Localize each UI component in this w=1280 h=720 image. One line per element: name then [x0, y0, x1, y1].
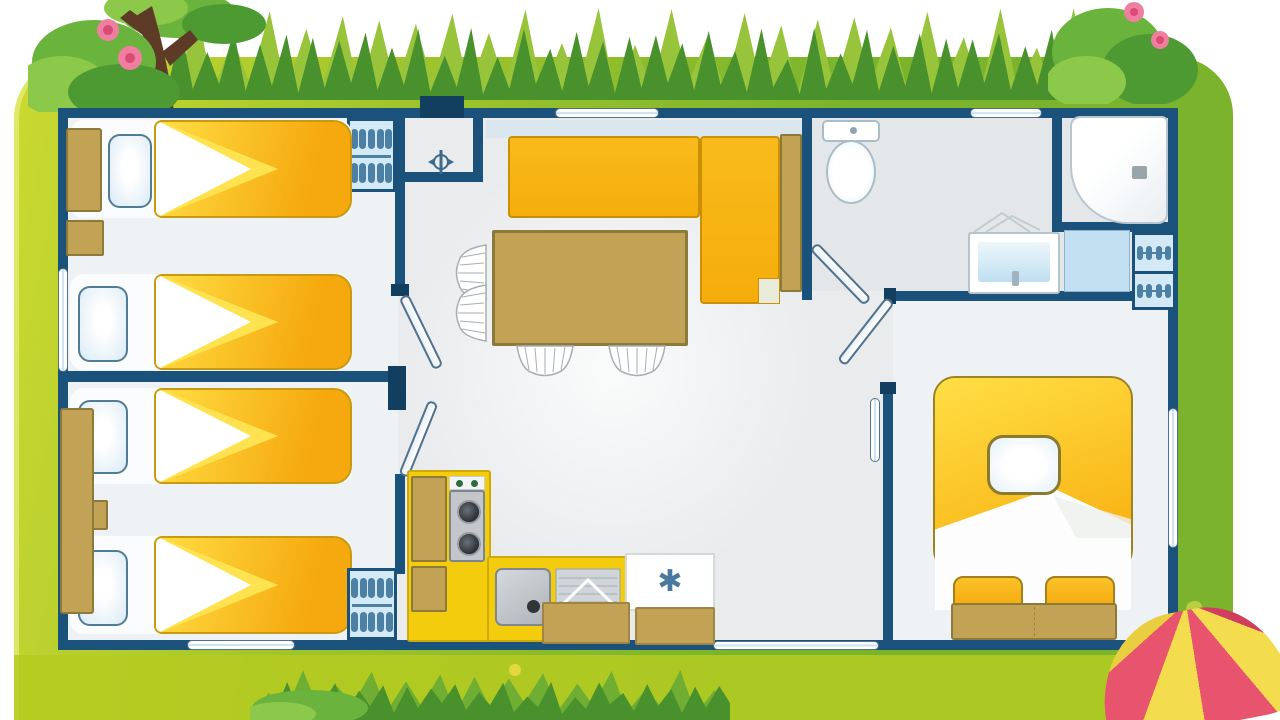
sofa-backrest [780, 134, 802, 292]
sofa-corner [758, 278, 780, 304]
bed-headboard [66, 128, 102, 212]
vanity-counter [1064, 230, 1130, 292]
window-left [58, 268, 68, 372]
window-bath [970, 108, 1042, 118]
wardrobe-bathroom [1132, 232, 1176, 310]
washbasin-faucet [1012, 271, 1019, 286]
flower-center [103, 25, 113, 35]
floorplan-illustration: ✱ [0, 0, 1280, 720]
flower-center [1130, 8, 1138, 16]
dining-table [492, 230, 688, 346]
bed-headboard-tall [60, 408, 94, 614]
stove-burner [457, 500, 481, 524]
window-living [555, 108, 659, 118]
kitchen-cabinet [411, 476, 447, 562]
kitchen-cabinet [411, 566, 447, 612]
tree [28, 0, 300, 112]
bed-blanket [154, 274, 352, 370]
sink-drain [527, 600, 540, 613]
bed-blanket [154, 388, 352, 484]
grass-bottom [250, 662, 730, 720]
flower-center [125, 53, 135, 63]
towels [972, 210, 1044, 234]
bed-decor-cushion [987, 435, 1061, 495]
headboard-seam [1034, 607, 1035, 636]
wall-bedroom3-cap [880, 382, 896, 394]
snowflake-icon: ✱ [627, 555, 713, 609]
bush-right [1048, 0, 1198, 104]
window-bottom-mid [713, 641, 879, 650]
stove-knob [456, 480, 463, 487]
dining-chair [605, 342, 669, 376]
stove-burner [457, 532, 481, 556]
wardrobe-bedroom1 [347, 118, 396, 192]
double-bed-headboard [951, 603, 1117, 640]
freezer: ✱ [625, 553, 715, 611]
toilet-bowl [826, 140, 876, 204]
toilet-button [850, 127, 857, 134]
flower-center [1156, 36, 1164, 44]
headboard-knob [92, 500, 108, 530]
wardrobe-bedroom2 [347, 568, 397, 640]
dining-chair [513, 342, 577, 376]
wall-bedroom2 [395, 474, 405, 574]
nightstand [66, 220, 104, 256]
shower-drain [1132, 166, 1147, 179]
sofa-seat-horizontal [508, 136, 700, 218]
wall-right [1168, 108, 1178, 650]
double-bed [933, 376, 1133, 640]
flower-yellow [509, 664, 521, 676]
compass-west [428, 158, 435, 166]
vestibule-symbol [428, 149, 454, 175]
washbasin [968, 232, 1060, 294]
bed-pillow [78, 286, 128, 362]
wall-bedroom-divider [68, 371, 398, 382]
stove-knob-panel [449, 476, 485, 490]
compass-axis [440, 150, 443, 174]
entry-step [542, 602, 630, 644]
floorplan: ✱ [58, 108, 1178, 650]
bed-pillow [108, 134, 152, 208]
stove-knob [471, 480, 478, 487]
wall-wc [802, 118, 812, 300]
stove [449, 490, 485, 562]
bed-blanket [154, 120, 352, 218]
window-bedroom3 [1168, 408, 1178, 548]
entry-step [635, 607, 715, 645]
wall-bedroom1 [395, 118, 405, 294]
wall-divider-cap [388, 366, 406, 410]
compass-east [447, 158, 454, 166]
toilet-tank [822, 120, 880, 142]
wall-shower-v [1052, 118, 1062, 230]
window-hall-side [870, 398, 880, 462]
bed-blanket [154, 536, 352, 634]
window-bedroom2 [187, 640, 295, 650]
dining-chair [453, 281, 493, 345]
wall-bedroom3 [883, 390, 893, 640]
entrance-door [420, 96, 464, 118]
